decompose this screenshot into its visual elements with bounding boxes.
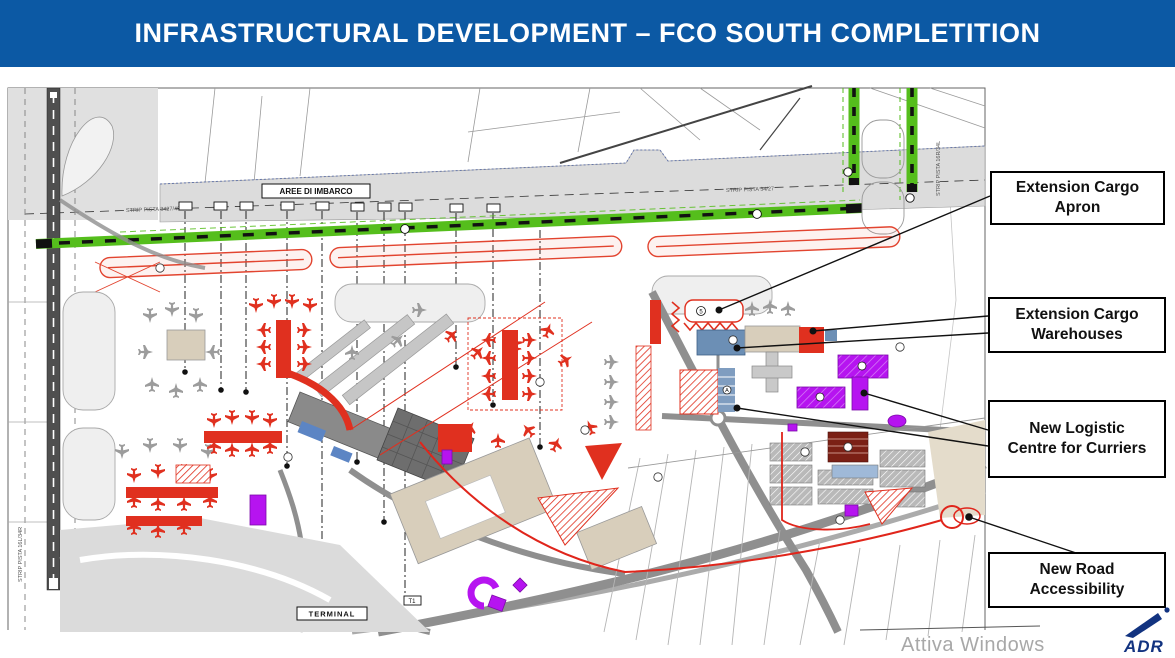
callout-extension-cargo-apron: Extension Cargo Apron [990, 171, 1165, 225]
activation-watermark: Attiva Windows [901, 634, 1045, 657]
terminal-label: TERMINAL [309, 610, 356, 619]
adr-dot-icon [1164, 607, 1169, 612]
callout-new-logistic-centre: New Logistic Centre for Curriers [988, 400, 1166, 478]
strip-label-left: STRIP PISTA 16L/34R [18, 527, 24, 582]
t1-label: T1 [408, 599, 416, 605]
adr-logo-text: ADR [1123, 637, 1164, 654]
boarding-area-label: AREE DI IMBARCO [280, 187, 353, 196]
callout-extension-cargo-warehouses: Extension Cargo Warehouses [988, 297, 1166, 353]
callout-new-road-accessibility: New Road Accessibility [988, 552, 1166, 608]
adr-swoosh-icon [1125, 613, 1162, 638]
strip-label-right: STRIP PISTA 16R/34L [936, 141, 942, 196]
adr-logo: ADR [1122, 606, 1174, 654]
terminal-label-box: TERMINAL [297, 607, 367, 620]
block-letter: A [725, 388, 729, 394]
slide: INFRASTRUCTURAL DEVELOPMENT – FCO SOUTH … [0, 0, 1175, 658]
